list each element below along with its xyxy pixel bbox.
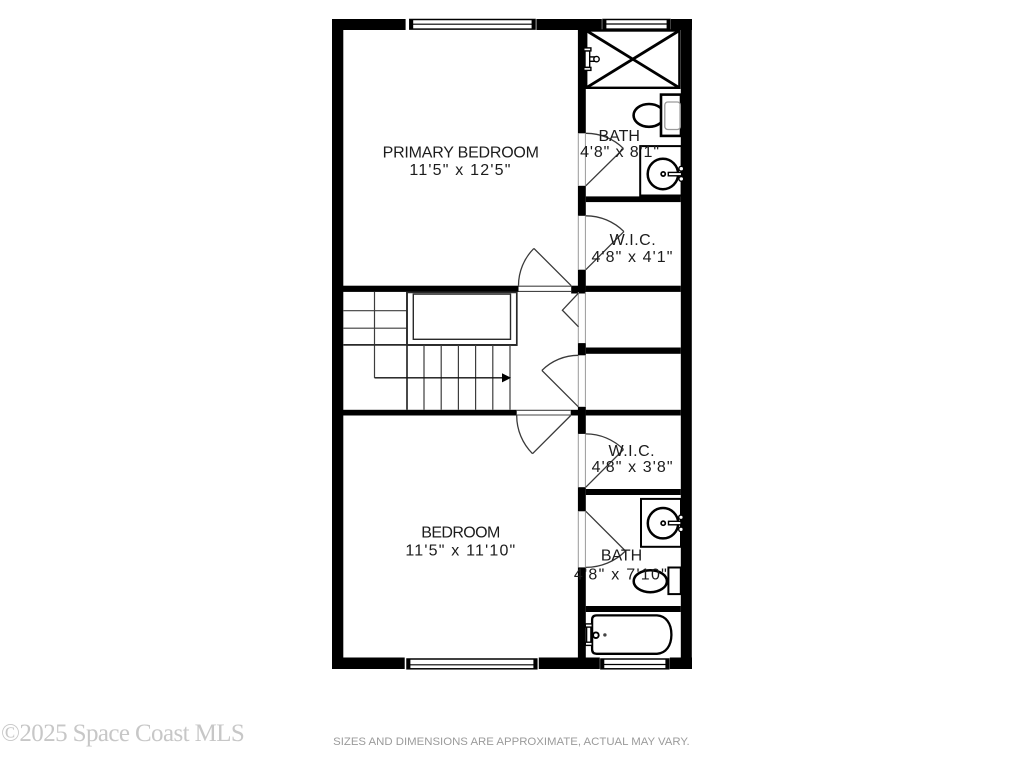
svg-text:4'8" x 8'1": 4'8" x 8'1" [580, 144, 660, 161]
svg-text:4'8" x 3'8": 4'8" x 3'8" [592, 459, 674, 476]
svg-text:4'8" x 4'1": 4'8" x 4'1" [591, 249, 673, 266]
svg-text:W.I.C.: W.I.C. [610, 232, 657, 249]
svg-text:©2025 Space Coast MLS: ©2025 Space Coast MLS [1, 720, 244, 747]
svg-text:SIZES AND DIMENSIONS ARE APPRO: SIZES AND DIMENSIONS ARE APPROXIMATE, AC… [333, 736, 690, 748]
svg-text:W.I.C.: W.I.C. [609, 443, 656, 460]
svg-text:BATH: BATH [599, 128, 640, 145]
svg-text:11'5" x 12'5": 11'5" x 12'5" [409, 162, 511, 179]
svg-text:PRIMARY BEDROOM: PRIMARY BEDROOM [383, 145, 539, 162]
svg-text:BEDROOM: BEDROOM [421, 525, 500, 542]
svg-text:4'8" x 7'10": 4'8" x 7'10" [574, 567, 668, 584]
svg-text:11'5" x 11'10": 11'5" x 11'10" [405, 543, 516, 560]
svg-text:BATH: BATH [601, 548, 642, 565]
